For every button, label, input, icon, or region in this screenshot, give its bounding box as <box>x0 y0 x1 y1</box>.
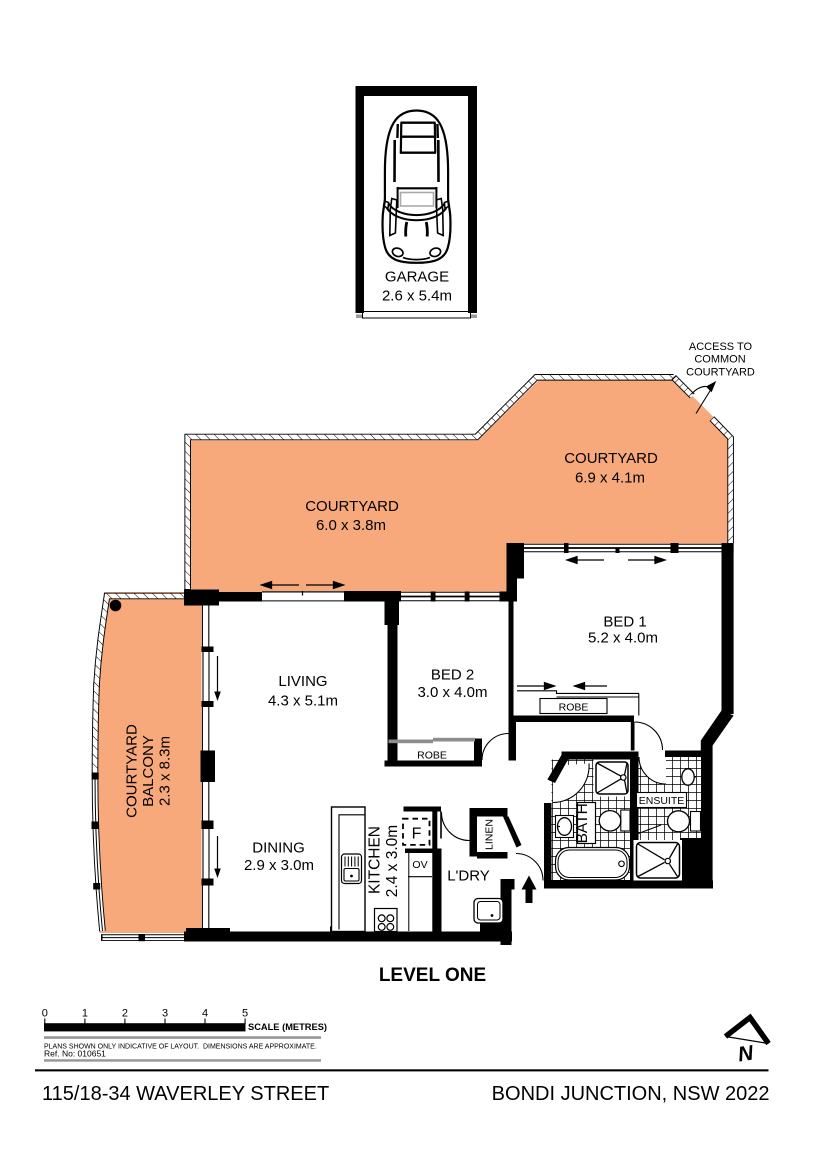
svg-text:LIVING: LIVING <box>278 673 327 690</box>
svg-text:BALCONY: BALCONY <box>140 735 157 807</box>
svg-text:6.9 x 4.1m: 6.9 x 4.1m <box>575 470 645 487</box>
svg-text:ACCESS TO: ACCESS TO <box>689 341 753 353</box>
svg-text:LEVEL ONE: LEVEL ONE <box>379 965 486 986</box>
svg-text:5.2 x 4.0m: 5.2 x 4.0m <box>588 630 658 647</box>
svg-text:2.9 x 3.0m: 2.9 x 3.0m <box>244 857 314 874</box>
svg-text:COURTYARD: COURTYARD <box>686 366 755 378</box>
svg-text:COURTYARD: COURTYARD <box>124 724 141 818</box>
svg-text:Ref. No: 010651: Ref. No: 010651 <box>44 1048 106 1058</box>
svg-text:OV: OV <box>412 859 427 871</box>
svg-text:4: 4 <box>202 1008 208 1020</box>
svg-text:2: 2 <box>122 1008 128 1020</box>
svg-text:COURTYARD: COURTYARD <box>564 450 658 467</box>
svg-text:BONDI JUNCTION, NSW 2022: BONDI JUNCTION, NSW 2022 <box>492 1083 770 1105</box>
svg-text:5: 5 <box>242 1008 248 1020</box>
svg-text:DINING: DINING <box>252 840 305 857</box>
svg-text:BED 2: BED 2 <box>431 667 474 684</box>
svg-text:F: F <box>412 826 422 843</box>
svg-text:3.0 x 4.0m: 3.0 x 4.0m <box>417 684 487 701</box>
svg-text:GARAGE: GARAGE <box>385 269 449 286</box>
svg-text:6.0 x 3.8m: 6.0 x 3.8m <box>316 517 386 534</box>
svg-text:3: 3 <box>162 1008 168 1020</box>
svg-text:ROBE: ROBE <box>417 750 447 762</box>
svg-text:2.6 x 5.4m: 2.6 x 5.4m <box>382 288 452 305</box>
svg-text:1: 1 <box>82 1008 88 1020</box>
svg-text:ROBE: ROBE <box>559 701 589 713</box>
svg-text:COURTYARD: COURTYARD <box>305 498 399 515</box>
svg-text:SCALE (METRES): SCALE (METRES) <box>248 1022 327 1032</box>
svg-text:L'DRY: L'DRY <box>447 868 490 885</box>
svg-text:COMMON: COMMON <box>694 354 745 366</box>
svg-text:4.3 x 5.1m: 4.3 x 5.1m <box>268 693 338 710</box>
svg-text:BED 1: BED 1 <box>603 614 646 631</box>
svg-text:2.3 x 8.3m: 2.3 x 8.3m <box>157 736 174 806</box>
svg-text:115/18-34 WAVERLEY STREET: 115/18-34 WAVERLEY STREET <box>42 1083 329 1105</box>
svg-text:2.4 x 3.0m: 2.4 x 3.0m <box>384 825 401 897</box>
svg-text:BATH: BATH <box>574 803 591 843</box>
svg-text:ENSUITE: ENSUITE <box>639 795 685 807</box>
svg-text:LINEN: LINEN <box>484 819 496 850</box>
svg-text:KITCHEN: KITCHEN <box>367 826 384 894</box>
svg-text:0: 0 <box>42 1008 48 1020</box>
